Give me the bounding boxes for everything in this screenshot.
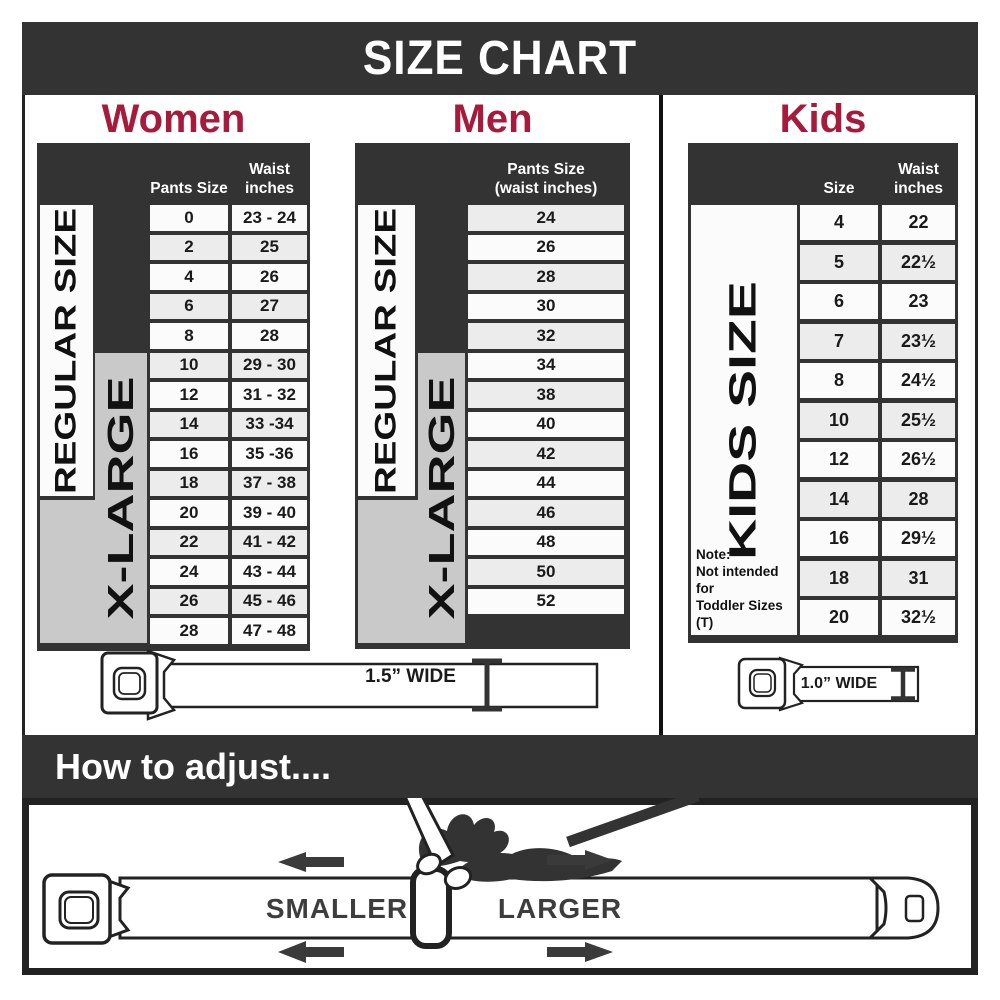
adjuster-slider: [413, 869, 449, 946]
table-cell: 22: [150, 530, 228, 556]
table-row: 48: [468, 530, 624, 556]
table-cell: 47 - 48: [232, 618, 307, 644]
table-cell: 10: [150, 353, 228, 379]
men-regular-size-block: REGULAR SIZE: [358, 205, 415, 496]
women-regular-size-label: REGULAR SIZE: [50, 208, 84, 494]
table-cell: 31 - 32: [232, 382, 307, 408]
table-cell: 28: [150, 618, 228, 644]
table-cell: 32: [468, 323, 624, 349]
table-row: 24: [468, 205, 624, 231]
table-cell: 4: [150, 264, 228, 290]
men-size-table: Pants Size (waist inches) REGULAR SIZE X…: [355, 143, 630, 649]
women-size-table: Pants Size Waist inches REGULAR SIZE X-L…: [37, 143, 310, 651]
table-row: 1433 -34: [150, 412, 307, 438]
table-cell: 10: [800, 403, 878, 438]
section-divider: [659, 95, 663, 735]
table-row: 1837 - 38: [150, 471, 307, 497]
table-row: 2847 - 48: [150, 618, 307, 644]
women-xlarge-label: X-LARGE: [100, 377, 142, 620]
table-row: 1831: [800, 561, 955, 596]
women-table-rows: 023 - 242254266278281029 - 301231 - 3214…: [150, 205, 307, 648]
table-cell: 28: [468, 264, 624, 290]
kids-table-rows: 422522½623723½824½1025½1226½14281629½183…: [800, 205, 955, 640]
table-cell: 5: [800, 245, 878, 280]
table-cell: 18: [800, 561, 878, 596]
table-cell: 25½: [882, 403, 955, 438]
table-row: 1635 -36: [150, 441, 307, 467]
table-row: 52: [468, 589, 624, 615]
table-cell: 22: [882, 205, 955, 240]
table-cell: 26: [468, 235, 624, 261]
table-cell: 40: [468, 412, 624, 438]
men-regular-size-label: REGULAR SIZE: [370, 208, 404, 494]
table-cell: 6: [800, 284, 878, 319]
kids-belt-width-label: 1.0” WIDE: [798, 672, 880, 696]
men-col-pants-size-header: Pants Size (waist inches): [468, 143, 624, 205]
table-cell: 39 - 40: [232, 500, 307, 526]
table-row: 1025½: [800, 403, 955, 438]
how-to-adjust-title: How to adjust....: [55, 746, 331, 788]
table-row: 2645 - 46: [150, 589, 307, 615]
table-row: 828: [150, 323, 307, 349]
table-row: 1029 - 30: [150, 353, 307, 379]
table-cell: 28: [232, 323, 307, 349]
table-row: 824½: [800, 363, 955, 398]
table-cell: 29 - 30: [232, 353, 307, 379]
table-cell: 29½: [882, 521, 955, 556]
table-cell: 8: [150, 323, 228, 349]
table-row: 38: [468, 382, 624, 408]
table-cell: 43 - 44: [232, 559, 307, 585]
table-cell: 20: [800, 600, 878, 635]
table-row: 2039 - 40: [150, 500, 307, 526]
kids-size-table: Size Waist inches KIDS SIZE Note: Not in…: [688, 143, 958, 643]
table-row: 2443 - 44: [150, 559, 307, 585]
women-regular-size-block: REGULAR SIZE: [40, 205, 93, 496]
men-xlarge-label: X-LARGE: [421, 377, 463, 620]
table-cell: 23: [882, 284, 955, 319]
table-row: 1428: [800, 482, 955, 517]
table-cell: 23 - 24: [232, 205, 307, 231]
table-cell: 38: [468, 382, 624, 408]
table-cell: 44: [468, 471, 624, 497]
table-cell: 41 - 42: [232, 530, 307, 556]
table-row: 426: [150, 264, 307, 290]
kids-size-block: KIDS SIZE Note: Not intended for Toddler…: [691, 205, 797, 635]
table-row: 422: [800, 205, 955, 240]
kids-col-waist-header: Waist inches: [882, 143, 955, 205]
adult-belt-width-label: 1.5” WIDE: [348, 663, 473, 691]
table-cell: 50: [468, 559, 624, 585]
table-cell: 26: [232, 264, 307, 290]
table-cell: 6: [150, 294, 228, 320]
table-cell: 8: [800, 363, 878, 398]
table-cell: 30: [468, 294, 624, 320]
table-cell: 0: [150, 205, 228, 231]
kids-col-size-header: Size: [800, 143, 878, 205]
table-cell: 24: [468, 205, 624, 231]
table-row: 46: [468, 500, 624, 526]
table-row: 522½: [800, 245, 955, 280]
table-row: 40: [468, 412, 624, 438]
table-row: 50: [468, 559, 624, 585]
table-cell: 12: [800, 442, 878, 477]
table-cell: 16: [800, 521, 878, 556]
table-cell: 7: [800, 324, 878, 359]
table-cell: 2: [150, 235, 228, 261]
men-heading: Men: [355, 97, 630, 141]
size-chart-page: SIZE CHART Women Men Kids Pants Size Wai…: [0, 0, 1000, 1000]
table-row: 2032½: [800, 600, 955, 635]
page-title: SIZE CHART: [363, 31, 637, 86]
table-cell: 14: [800, 482, 878, 517]
table-cell: 14: [150, 412, 228, 438]
table-row: 1226½: [800, 442, 955, 477]
women-col-waist-header: Waist inches: [232, 143, 307, 205]
table-row: 723½: [800, 324, 955, 359]
table-row: 225: [150, 235, 307, 261]
women-heading: Women: [37, 97, 310, 141]
larger-label: LARGER: [490, 893, 630, 925]
table-cell: 45 - 46: [232, 589, 307, 615]
table-cell: 42: [468, 441, 624, 467]
kids-note: Note: Not intended for Toddler Sizes (T): [696, 546, 797, 631]
adjust-illustration: [22, 798, 978, 975]
men-table-rows: 2426283032343840424446485052: [468, 205, 624, 618]
table-cell: 32½: [882, 600, 955, 635]
table-cell: 23½: [882, 324, 955, 359]
table-row: 1629½: [800, 521, 955, 556]
table-cell: 26: [150, 589, 228, 615]
table-cell: 33 -34: [232, 412, 307, 438]
table-cell: 22½: [882, 245, 955, 280]
how-to-adjust-band: How to adjust....: [22, 735, 978, 798]
table-row: 623: [800, 284, 955, 319]
table-row: 26: [468, 235, 624, 261]
table-cell: 12: [150, 382, 228, 408]
table-row: 023 - 24: [150, 205, 307, 231]
women-col-pants-size-header: Pants Size: [150, 143, 228, 205]
table-cell: 16: [150, 441, 228, 467]
table-cell: 52: [468, 589, 624, 615]
table-row: 32: [468, 323, 624, 349]
kids-heading: Kids: [688, 97, 958, 141]
table-cell: 4: [800, 205, 878, 240]
table-cell: 25: [232, 235, 307, 261]
table-row: 1231 - 32: [150, 382, 307, 408]
table-row: 44: [468, 471, 624, 497]
table-cell: 28: [882, 482, 955, 517]
table-cell: 18: [150, 471, 228, 497]
table-cell: 35 -36: [232, 441, 307, 467]
table-cell: 37 - 38: [232, 471, 307, 497]
table-cell: 24½: [882, 363, 955, 398]
table-cell: 48: [468, 530, 624, 556]
table-cell: 46: [468, 500, 624, 526]
table-cell: 31: [882, 561, 955, 596]
table-row: 34: [468, 353, 624, 379]
table-cell: 20: [150, 500, 228, 526]
table-row: 42: [468, 441, 624, 467]
smaller-label: SMALLER: [262, 893, 412, 925]
kids-size-label: KIDS SIZE: [723, 281, 766, 560]
table-row: 2241 - 42: [150, 530, 307, 556]
women-xlarge-block: X-LARGE: [95, 353, 147, 643]
table-row: 28: [468, 264, 624, 290]
title-banner: SIZE CHART: [22, 22, 978, 95]
table-cell: 27: [232, 294, 307, 320]
table-cell: 26½: [882, 442, 955, 477]
men-xlarge-block: X-LARGE: [418, 353, 465, 643]
table-row: 30: [468, 294, 624, 320]
table-cell: 34: [468, 353, 624, 379]
table-row: 627: [150, 294, 307, 320]
table-cell: 24: [150, 559, 228, 585]
